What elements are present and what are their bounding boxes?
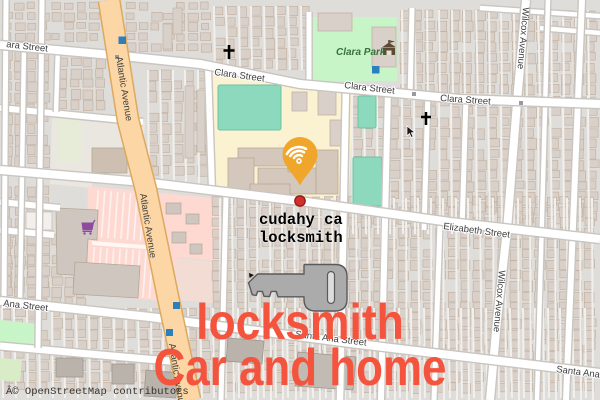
svg-text:Clara Park: Clara Park [336,47,386,58]
